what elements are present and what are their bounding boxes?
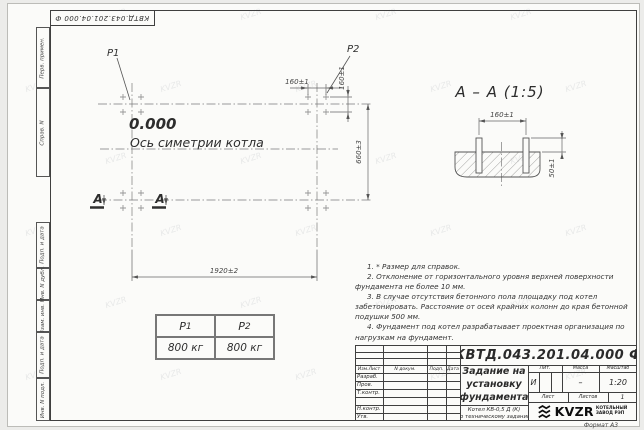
doc-title-line2: установку xyxy=(460,378,528,391)
note-4: 4. Фундамент под котел разрабатывает про… xyxy=(355,322,635,342)
scale-value: 1:20 xyxy=(599,372,637,392)
drawing-sheet-page: { "drawing": { "corner_stamp": "КВТД.043… xyxy=(0,0,644,430)
p1-sub: 1 xyxy=(186,321,192,332)
logo-text: KVZR xyxy=(555,404,594,419)
corner-stamp: КВТД.043.201.04.000 Ф xyxy=(50,10,155,26)
col-n-dokum: N докум. xyxy=(383,365,427,373)
row-tkontr: Т.контр. xyxy=(355,389,383,397)
load-table-value-p1: 800 кг xyxy=(156,337,215,359)
load-point-p1-label: P1 xyxy=(107,48,119,59)
company-name-line2: ЗАВОД РЭП xyxy=(596,412,628,417)
doc-title-line3: фундамента xyxy=(460,391,528,404)
load-table: P1 P2 800 кг 800 кг xyxy=(155,314,275,360)
plan-bolt-markers xyxy=(120,94,329,211)
dimension-lines xyxy=(132,84,368,281)
col-podp: Подп. xyxy=(427,365,446,373)
elevation-mark: 0.000 xyxy=(129,115,176,133)
col-data: Дата xyxy=(446,365,460,373)
sheets-value: 1 xyxy=(608,392,637,402)
sheet-label: Лист xyxy=(528,392,568,402)
note-3: 3. В случае отсутствия бетонного пола пл… xyxy=(355,292,635,322)
p2-symbol: P xyxy=(238,320,245,333)
scale-header: Масштаб xyxy=(599,365,637,372)
kvzr-waves-icon xyxy=(538,405,553,419)
notes-block: 1. * Размер для справок. 2. Отклонение о… xyxy=(355,262,635,343)
dim-section-bolt-spacing: 160±1 xyxy=(490,111,514,119)
plan-centerlines xyxy=(98,83,502,250)
row-utv: Утв. xyxy=(355,413,383,421)
row-empty xyxy=(355,397,383,405)
company-logo: KVZR КОТЕЛЬНЫЙ ЗАВОД РЭП xyxy=(528,402,637,421)
boiler-symmetry-axis-label: Ось симетрии котла xyxy=(130,135,264,150)
load-table-header-p2: P2 xyxy=(215,315,274,337)
dim-bolt-spacing-x: 160±1 xyxy=(285,78,309,86)
row-razrab: Разраб. xyxy=(355,373,383,381)
load-table-header-p1: P1 xyxy=(156,315,215,337)
doc-title-line1: Задание на xyxy=(460,365,528,378)
p1-symbol: P xyxy=(179,320,186,333)
corner-stamp-doc-number: КВТД.043.201.04.000 Ф xyxy=(55,14,149,22)
dim-depth-660: 660±3 xyxy=(355,140,363,164)
load-table-value-p2: 800 кг xyxy=(215,337,274,359)
row-prov: Пров. xyxy=(355,381,383,389)
dim-bolt-spacing-y: 160±1 xyxy=(338,66,346,90)
section-letter-left: А xyxy=(92,192,102,206)
format-label: Формат А3 xyxy=(556,422,644,430)
load-point-p2-label: P2 xyxy=(347,44,359,55)
title-block-doc-number: КВТД.043.201.04.000 Ф xyxy=(460,345,637,365)
lit-value: И xyxy=(528,372,539,392)
col-izm-list: Изм.Лист xyxy=(355,365,383,373)
dim-bolt-protrusion: 50±1 xyxy=(548,158,556,177)
row-nkontr: Н.контр. xyxy=(355,405,383,413)
note-1: 1. * Размер для справок. xyxy=(355,262,635,272)
doc-subtitle-line2: по техническому заданию xyxy=(460,413,528,421)
title-block: КВТД.043.201.04.000 Ф Изм.Лист N докум. … xyxy=(355,345,637,421)
p2-sub: 2 xyxy=(245,321,251,332)
mass-value: – xyxy=(562,372,599,392)
mass-header: Масса xyxy=(562,365,599,372)
note-2: 2. Отклонение от горизонтального уровня … xyxy=(355,272,635,292)
dim-width-1920: 1920±2 xyxy=(210,267,239,275)
load-point-leaders xyxy=(117,56,350,100)
section-letter-right: А xyxy=(154,192,164,206)
section-view-title: А – А (1:5) xyxy=(454,83,544,101)
sheets-label: Листов xyxy=(568,392,608,402)
lit-header: Лит. xyxy=(528,365,562,372)
